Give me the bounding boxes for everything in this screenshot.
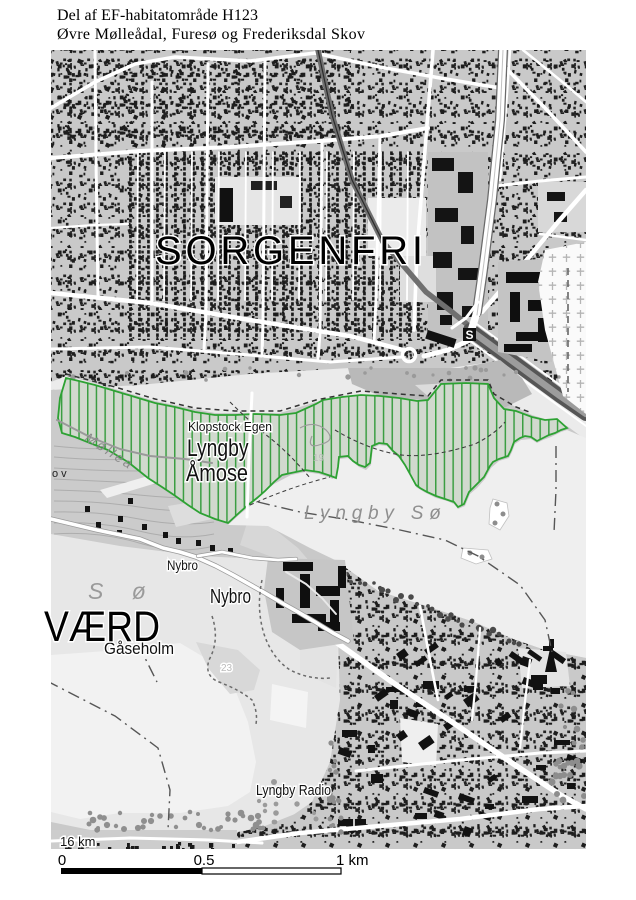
svg-text:23: 23: [221, 663, 233, 674]
svg-text:16 km: 16 km: [60, 834, 95, 849]
svg-text:Lyngby Radio: Lyngby Radio: [256, 782, 331, 799]
svg-text:1 km: 1 km: [336, 852, 369, 869]
svg-text:Lyngby Sø: Lyngby Sø: [304, 503, 447, 524]
svg-text:0.5: 0.5: [194, 852, 215, 869]
svg-text:Klopstock Egen: Klopstock Egen: [188, 419, 272, 434]
svg-text:Øvre Mølleådal, Furesø og Fred: Øvre Mølleådal, Furesø og Frederiksdal S…: [57, 26, 365, 43]
svg-text:Åmose: Åmose: [186, 459, 248, 487]
svg-text:Nybro: Nybro: [167, 558, 198, 573]
svg-text:SORGENFRI: SORGENFRI: [155, 229, 423, 273]
svg-text:0: 0: [58, 852, 66, 869]
svg-text:Del af EF-habitatområde H123: Del af EF-habitatområde H123: [57, 7, 258, 24]
svg-text:19: 19: [313, 453, 325, 464]
svg-text:o v: o v: [52, 468, 67, 480]
svg-text:VÆRD: VÆRD: [44, 603, 160, 651]
svg-text:Lyngby: Lyngby: [187, 435, 249, 462]
svg-text:S: S: [465, 328, 473, 342]
svg-text:S ø: S ø: [88, 578, 157, 604]
svg-text:Nybro: Nybro: [210, 586, 251, 608]
